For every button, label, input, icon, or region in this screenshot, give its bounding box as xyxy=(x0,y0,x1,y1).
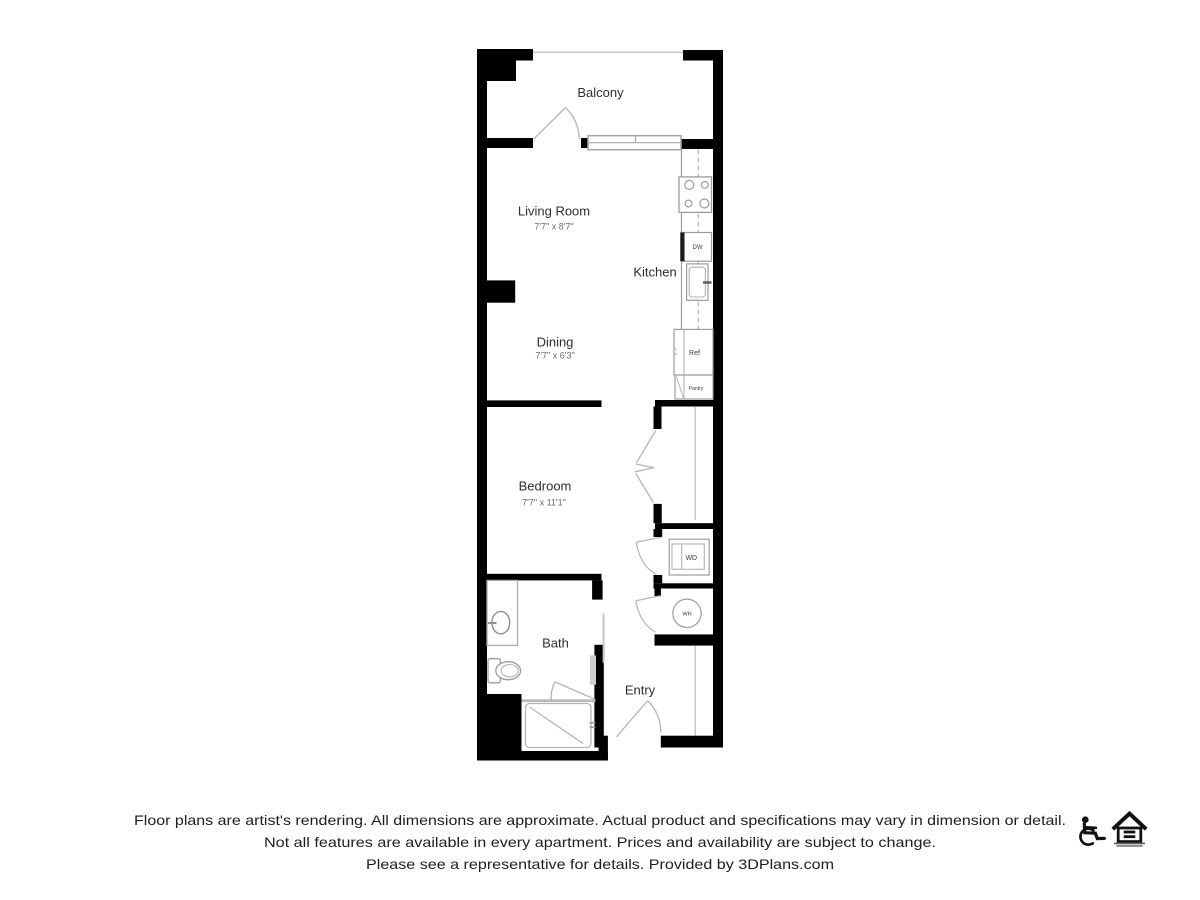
svg-text:7'7" x 11'1": 7'7" x 11'1" xyxy=(522,498,566,508)
svg-text:WH: WH xyxy=(682,612,691,618)
svg-text:DW: DW xyxy=(693,245,703,251)
svg-text:Ref: Ref xyxy=(689,350,700,357)
svg-text:Entry: Entry xyxy=(625,683,656,698)
svg-text:7'7" x 6'3": 7'7" x 6'3" xyxy=(535,351,574,361)
svg-text:WD: WD xyxy=(685,555,697,562)
svg-text:Bedroom: Bedroom xyxy=(519,479,572,494)
svg-text:Dining: Dining xyxy=(537,335,574,350)
svg-text:Living Room: Living Room xyxy=(518,204,590,219)
svg-text:Pantry: Pantry xyxy=(689,386,704,392)
svg-text:Not all features are available: Not all features are available in every … xyxy=(264,835,936,850)
svg-text:7'7" x 8'7": 7'7" x 8'7" xyxy=(534,222,573,232)
svg-text:Please see a representative fo: Please see a representative for details.… xyxy=(366,857,834,872)
svg-text:Balcony: Balcony xyxy=(577,85,624,100)
svg-text:Floor plans are artist's rende: Floor plans are artist's rendering. All … xyxy=(134,813,1066,828)
svg-text:Bath: Bath xyxy=(542,636,569,651)
svg-text:Kitchen: Kitchen xyxy=(633,264,676,279)
